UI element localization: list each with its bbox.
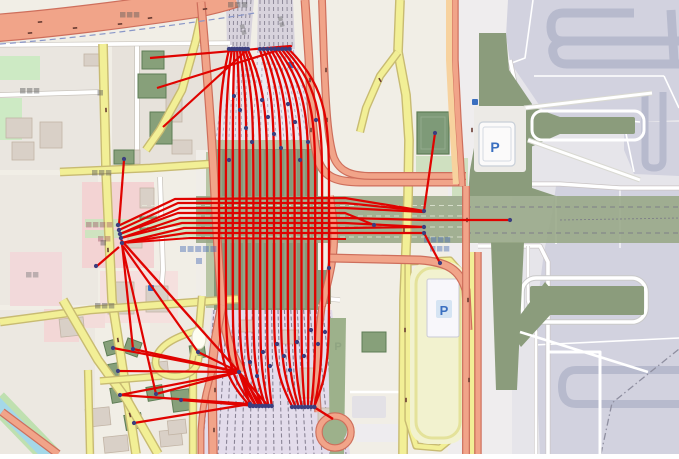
svg-text:P: P — [440, 303, 449, 318]
svg-text:P: P — [334, 341, 341, 353]
svg-text:P: P — [490, 139, 499, 155]
